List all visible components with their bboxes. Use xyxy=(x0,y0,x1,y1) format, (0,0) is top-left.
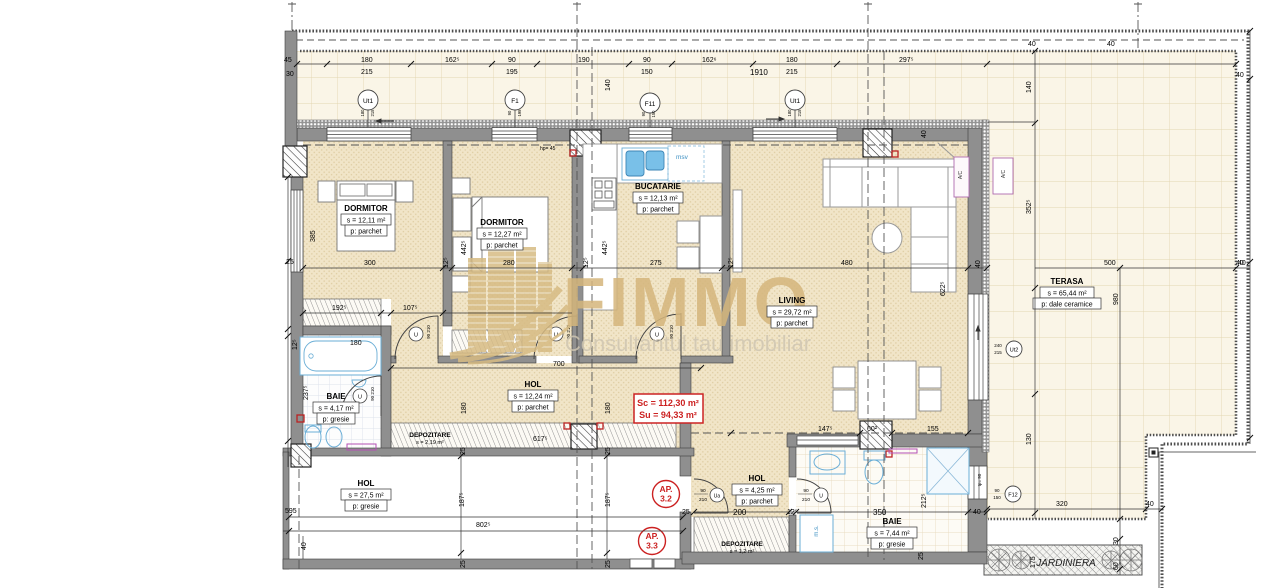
svg-text:25: 25 xyxy=(286,259,294,266)
svg-text:12⁵: 12⁵ xyxy=(728,257,735,268)
svg-text:Su = 94,33 m²: Su = 94,33 m² xyxy=(639,410,697,420)
svg-text:p: dale ceramice: p: dale ceramice xyxy=(1041,302,1092,309)
svg-text:300: 300 xyxy=(364,260,376,267)
svg-text:p: parchet: p: parchet xyxy=(642,207,673,214)
svg-text:s = 2,19 m²: s = 2,19 m² xyxy=(416,440,444,446)
svg-text:25: 25 xyxy=(460,447,467,455)
svg-text:40: 40 xyxy=(921,130,928,138)
svg-text:p: gresie: p: gresie xyxy=(323,417,350,424)
svg-text:s = 12,27 m²: s = 12,27 m² xyxy=(482,232,522,239)
svg-text:Consultantul tau imobiliar: Consultantul tau imobiliar xyxy=(565,331,811,356)
svg-text:40: 40 xyxy=(301,542,308,550)
svg-text:90: 90 xyxy=(641,111,646,116)
svg-text:480: 480 xyxy=(841,260,853,267)
svg-text:150: 150 xyxy=(641,69,653,76)
svg-text:s = 4,17 m²: s = 4,17 m² xyxy=(318,406,354,413)
svg-text:195: 195 xyxy=(506,69,518,76)
svg-text:s = 7,44 m²: s = 7,44 m² xyxy=(874,531,910,538)
svg-text:215: 215 xyxy=(370,109,375,117)
svg-text:180: 180 xyxy=(461,402,468,414)
svg-text:200: 200 xyxy=(733,508,747,517)
svg-text:HOL: HOL xyxy=(358,479,375,488)
svg-text:180: 180 xyxy=(786,57,798,64)
svg-text:40: 40 xyxy=(1236,72,1244,79)
svg-text:90 210: 90 210 xyxy=(370,387,375,401)
svg-text:90: 90 xyxy=(507,110,512,115)
svg-text:275: 275 xyxy=(650,260,662,267)
svg-text:240: 240 xyxy=(994,343,1002,348)
svg-text:150: 150 xyxy=(993,495,1001,500)
svg-text:HOL: HOL xyxy=(525,380,542,389)
svg-text:p: gresie: p: gresie xyxy=(879,542,906,549)
svg-text:s = 12,13 m²: s = 12,13 m² xyxy=(638,196,678,203)
svg-text:187⁵: 187⁵ xyxy=(459,492,466,507)
svg-text:s = 65,44 m²: s = 65,44 m² xyxy=(1047,291,1087,298)
svg-text:DEPOZITARE: DEPOZITARE xyxy=(721,541,763,548)
svg-text:320: 320 xyxy=(1056,501,1068,508)
svg-text:280: 280 xyxy=(503,260,515,267)
svg-text:90: 90 xyxy=(508,57,516,64)
svg-text:90 210: 90 210 xyxy=(426,325,431,339)
svg-text:s = 29,72 m²: s = 29,72 m² xyxy=(772,310,812,317)
svg-text:180: 180 xyxy=(787,109,792,117)
svg-text:U: U xyxy=(414,333,418,339)
svg-text:180: 180 xyxy=(605,402,612,414)
svg-text:BAIE: BAIE xyxy=(326,392,346,401)
svg-text:130: 130 xyxy=(1026,433,1033,445)
svg-text:12⁵: 12⁵ xyxy=(292,339,299,350)
svg-text:Ut2: Ut2 xyxy=(1010,348,1019,354)
svg-text:215: 215 xyxy=(994,350,1002,355)
svg-text:617⁵: 617⁵ xyxy=(533,436,548,443)
svg-text:30: 30 xyxy=(1113,537,1120,545)
svg-text:215: 215 xyxy=(786,69,798,76)
svg-text:FIMMO: FIMMO xyxy=(563,263,811,341)
svg-text:60²: 60² xyxy=(867,426,878,433)
svg-text:Sc = 112,30 m²: Sc = 112,30 m² xyxy=(637,398,699,408)
svg-text:40: 40 xyxy=(1238,260,1246,267)
svg-text:A/C: A/C xyxy=(1001,169,1007,178)
svg-text:25: 25 xyxy=(605,447,612,455)
svg-text:DEPOZITARE: DEPOZITARE xyxy=(409,432,451,439)
svg-text:AP.: AP. xyxy=(659,484,672,494)
svg-text:180: 180 xyxy=(350,340,362,347)
svg-text:BUCATARIE: BUCATARIE xyxy=(635,182,682,191)
svg-text:297⁵: 297⁵ xyxy=(899,57,914,64)
svg-text:p: gresie: p: gresie xyxy=(353,504,380,511)
svg-text:p: parchet: p: parchet xyxy=(776,321,807,328)
svg-text:350: 350 xyxy=(873,508,887,517)
svg-text:F11: F11 xyxy=(645,101,656,108)
svg-text:Ua: Ua xyxy=(714,494,721,500)
svg-text:p: parchet: p: parchet xyxy=(350,229,381,236)
svg-text:90: 90 xyxy=(994,488,1000,493)
svg-text:DORMITOR: DORMITOR xyxy=(480,218,524,227)
svg-text:175: 175 xyxy=(1030,556,1037,568)
svg-text:60: 60 xyxy=(1113,562,1120,570)
svg-text:212⁵: 212⁵ xyxy=(921,493,928,508)
svg-text:622⁵: 622⁵ xyxy=(940,281,947,296)
svg-text:215: 215 xyxy=(797,109,802,117)
svg-text:m.s.: m.s. xyxy=(814,525,820,537)
svg-text:3.2: 3.2 xyxy=(660,494,672,504)
svg-text:595: 595 xyxy=(285,508,297,515)
svg-text:40: 40 xyxy=(973,509,981,516)
svg-text:215: 215 xyxy=(361,69,373,76)
svg-text:A/C: A/C xyxy=(958,170,964,179)
svg-text:s = 1,2 m²: s = 1,2 m² xyxy=(730,549,755,555)
svg-text:237⁵: 237⁵ xyxy=(303,385,310,400)
svg-text:802⁵: 802⁵ xyxy=(476,522,491,529)
svg-text:40: 40 xyxy=(1146,501,1154,508)
svg-text:442⁵: 442⁵ xyxy=(461,240,468,255)
svg-text:s = 12,11 m²: s = 12,11 m² xyxy=(347,218,386,225)
svg-text:40: 40 xyxy=(975,260,982,268)
svg-text:p: parchet: p: parchet xyxy=(486,243,517,250)
svg-text:187⁵: 187⁵ xyxy=(605,492,612,507)
svg-text:25: 25 xyxy=(460,560,467,568)
svg-text:30: 30 xyxy=(286,71,294,78)
svg-text:150: 150 xyxy=(651,110,656,118)
svg-text:180: 180 xyxy=(361,57,373,64)
svg-text:980: 980 xyxy=(1113,293,1120,305)
svg-text:1910: 1910 xyxy=(750,68,768,77)
svg-text:140: 140 xyxy=(605,79,612,91)
svg-text:45: 45 xyxy=(284,57,292,64)
svg-text:msv: msv xyxy=(676,154,689,161)
svg-text:F12: F12 xyxy=(1008,493,1017,499)
svg-text:s = 4,25 m²: s = 4,25 m² xyxy=(739,488,775,495)
svg-text:3.3: 3.3 xyxy=(646,541,658,551)
svg-text:25: 25 xyxy=(682,509,690,516)
svg-text:12⁵: 12⁵ xyxy=(787,509,798,516)
svg-text:12⁵: 12⁵ xyxy=(583,257,590,268)
svg-text:hp= 45: hp= 45 xyxy=(540,146,556,152)
svg-text:90: 90 xyxy=(803,488,809,494)
svg-text:JARDINIERA: JARDINIERA xyxy=(1035,558,1096,569)
svg-text:442⁵: 442⁵ xyxy=(602,240,609,255)
svg-text:155: 155 xyxy=(927,426,939,433)
svg-text:352⁵: 352⁵ xyxy=(1026,199,1033,214)
svg-text:90: 90 xyxy=(700,488,706,494)
svg-text:s = 27,5 m²: s = 27,5 m² xyxy=(348,493,384,500)
svg-text:700: 700 xyxy=(553,361,565,368)
svg-text:p: parchet: p: parchet xyxy=(741,499,772,506)
svg-text:162⁵: 162⁵ xyxy=(445,57,460,64)
svg-text:p: parchet: p: parchet xyxy=(517,405,548,412)
svg-text:TERASA: TERASA xyxy=(1051,277,1084,286)
svg-text:U: U xyxy=(819,494,823,500)
svg-text:107⁵: 107⁵ xyxy=(403,305,418,312)
svg-text:LIVING: LIVING xyxy=(779,296,806,305)
svg-text:DORMITOR: DORMITOR xyxy=(344,204,388,213)
svg-text:40: 40 xyxy=(1107,41,1115,48)
svg-text:147⁵: 147⁵ xyxy=(818,426,833,433)
svg-text:140: 140 xyxy=(1026,81,1033,93)
svg-text:HOL: HOL xyxy=(749,474,766,483)
svg-text:192⁵: 192⁵ xyxy=(332,305,347,312)
svg-text:25: 25 xyxy=(918,552,925,560)
svg-text:195: 195 xyxy=(517,109,522,117)
svg-text:AP.: AP. xyxy=(645,531,658,541)
svg-text:U: U xyxy=(358,395,362,401)
svg-text:12⁵: 12⁵ xyxy=(443,257,450,268)
svg-text:40: 40 xyxy=(1028,41,1036,48)
svg-text:BAIE: BAIE xyxy=(882,517,902,526)
svg-text:tp= 90: tp= 90 xyxy=(977,473,982,486)
svg-text:Ut1: Ut1 xyxy=(363,98,374,105)
svg-text:190: 190 xyxy=(578,57,590,64)
svg-text:Ut1: Ut1 xyxy=(790,98,801,105)
svg-text:162⁶: 162⁶ xyxy=(702,57,717,64)
svg-text:180: 180 xyxy=(360,109,365,117)
svg-text:s = 12,24 m²: s = 12,24 m² xyxy=(513,394,553,401)
svg-text:25: 25 xyxy=(605,560,612,568)
svg-text:385: 385 xyxy=(310,230,317,242)
svg-text:F1: F1 xyxy=(511,98,519,105)
svg-text:90: 90 xyxy=(643,57,651,64)
svg-text:500: 500 xyxy=(1104,260,1116,267)
svg-text:210: 210 xyxy=(802,497,810,503)
svg-text:210: 210 xyxy=(699,497,707,503)
